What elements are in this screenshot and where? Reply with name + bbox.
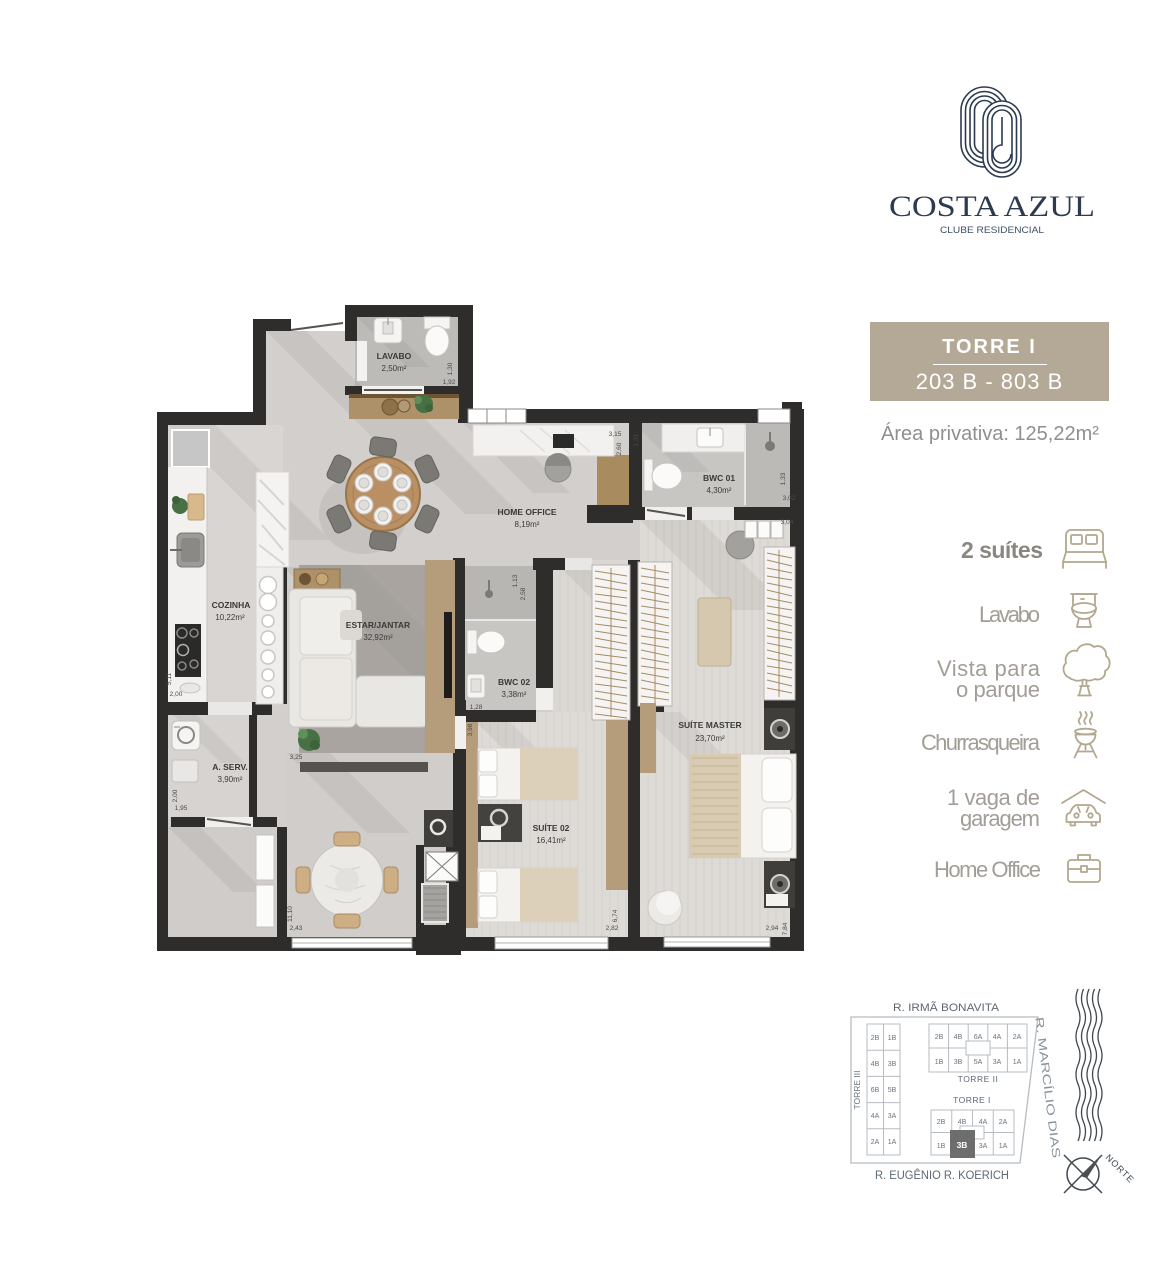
svg-text:LAVABO: LAVABO bbox=[377, 351, 412, 361]
svg-text:2A: 2A bbox=[1013, 1034, 1022, 1041]
svg-text:5,11: 5,11 bbox=[166, 673, 173, 686]
svg-text:HOME OFFICE: HOME OFFICE bbox=[497, 507, 556, 517]
svg-text:2 suítes: 2 suítes bbox=[961, 537, 1043, 563]
svg-text:5A: 5A bbox=[974, 1059, 983, 1066]
svg-text:4A: 4A bbox=[993, 1034, 1002, 1041]
svg-text:6B: 6B bbox=[871, 1087, 880, 1094]
svg-text:2,58: 2,58 bbox=[520, 587, 527, 600]
svg-text:TORRE II: TORRE II bbox=[958, 1074, 999, 1084]
svg-text:CLUBE RESIDENCIAL: CLUBE RESIDENCIAL bbox=[940, 225, 1044, 236]
svg-text:2B: 2B bbox=[871, 1035, 880, 1042]
svg-text:32,92m²: 32,92m² bbox=[363, 633, 393, 642]
svg-text:2A: 2A bbox=[999, 1119, 1008, 1126]
svg-text:TORRE I: TORRE I bbox=[953, 1095, 991, 1105]
svg-text:11,10: 11,10 bbox=[287, 906, 294, 922]
svg-text:1,31: 1,31 bbox=[633, 433, 640, 446]
svg-text:1,13: 1,13 bbox=[512, 574, 519, 587]
svg-text:3B: 3B bbox=[888, 1061, 897, 1068]
svg-text:Lavabo: Lavabo bbox=[979, 602, 1040, 627]
svg-text:2,43: 2,43 bbox=[290, 925, 303, 932]
svg-text:3A: 3A bbox=[888, 1113, 897, 1120]
svg-text:Home Office: Home Office bbox=[934, 857, 1041, 882]
svg-text:1,92: 1,92 bbox=[443, 379, 456, 386]
svg-text:4A: 4A bbox=[871, 1113, 880, 1120]
svg-text:1,33: 1,33 bbox=[780, 472, 787, 485]
svg-text:1A: 1A bbox=[1013, 1059, 1022, 1066]
svg-text:1A: 1A bbox=[999, 1143, 1008, 1150]
svg-text:23,70m²: 23,70m² bbox=[695, 734, 725, 743]
svg-text:3A: 3A bbox=[993, 1059, 1002, 1066]
svg-text:Churrasqueira: Churrasqueira bbox=[921, 730, 1041, 755]
svg-text:3A: 3A bbox=[979, 1143, 988, 1150]
svg-text:COSTA AZUL: COSTA AZUL bbox=[889, 190, 1095, 223]
svg-text:2,00: 2,00 bbox=[172, 789, 179, 802]
svg-text:2A: 2A bbox=[871, 1139, 880, 1146]
svg-text:2,82: 2,82 bbox=[606, 925, 619, 932]
svg-text:1A: 1A bbox=[888, 1139, 897, 1146]
svg-text:10,22m²: 10,22m² bbox=[215, 613, 245, 622]
svg-text:4B: 4B bbox=[954, 1034, 963, 1041]
svg-text:3,38m²: 3,38m² bbox=[502, 690, 527, 699]
svg-text:R. EUGÊNIO R. KOERICH: R. EUGÊNIO R. KOERICH bbox=[875, 1169, 1009, 1182]
svg-text:7,84: 7,84 bbox=[782, 922, 789, 935]
svg-text:4A: 4A bbox=[979, 1119, 988, 1126]
svg-text:3,98: 3,98 bbox=[467, 723, 474, 736]
svg-text:2B: 2B bbox=[937, 1119, 946, 1126]
svg-text:4B: 4B bbox=[871, 1061, 880, 1068]
svg-text:2,00: 2,00 bbox=[170, 691, 183, 698]
svg-text:3,02: 3,02 bbox=[783, 495, 796, 502]
svg-text:o parque: o parque bbox=[956, 677, 1040, 702]
svg-text:BWC 02: BWC 02 bbox=[498, 677, 530, 687]
svg-text:R. IRMÃ BONAVITA: R. IRMÃ BONAVITA bbox=[893, 1001, 1000, 1014]
svg-text:1,95: 1,95 bbox=[175, 805, 188, 812]
svg-text:3B: 3B bbox=[954, 1059, 963, 1066]
svg-text:1,28: 1,28 bbox=[470, 704, 483, 711]
svg-text:2,94: 2,94 bbox=[766, 925, 779, 932]
svg-text:4,30m²: 4,30m² bbox=[707, 486, 732, 495]
svg-text:8,19m²: 8,19m² bbox=[515, 520, 540, 529]
svg-text:A. SERV.: A. SERV. bbox=[212, 762, 247, 772]
svg-text:2B: 2B bbox=[935, 1034, 944, 1041]
svg-text:2,50m²: 2,50m² bbox=[382, 364, 407, 373]
svg-text:16,41m²: 16,41m² bbox=[536, 836, 566, 845]
svg-text:1B: 1B bbox=[937, 1143, 946, 1150]
svg-text:garagem: garagem bbox=[960, 806, 1040, 831]
svg-text:SUÍTE MASTER: SUÍTE MASTER bbox=[678, 720, 741, 730]
svg-text:COZINHA: COZINHA bbox=[212, 600, 251, 610]
svg-text:3,90m²: 3,90m² bbox=[218, 775, 243, 784]
svg-text:4B: 4B bbox=[958, 1119, 967, 1126]
svg-text:2,60: 2,60 bbox=[616, 442, 623, 455]
svg-text:1B: 1B bbox=[888, 1035, 897, 1042]
svg-text:6A: 6A bbox=[974, 1034, 983, 1041]
svg-text:3B: 3B bbox=[957, 1140, 968, 1150]
svg-text:NORTE: NORTE bbox=[1104, 1152, 1137, 1185]
svg-text:1,30: 1,30 bbox=[447, 362, 454, 375]
svg-text:3,04: 3,04 bbox=[781, 519, 794, 526]
svg-text:1B: 1B bbox=[935, 1059, 944, 1066]
svg-text:ESTAR/JANTAR: ESTAR/JANTAR bbox=[346, 620, 410, 630]
svg-text:SUÍTE 02: SUÍTE 02 bbox=[533, 823, 570, 833]
svg-text:3,15: 3,15 bbox=[609, 431, 622, 438]
svg-text:5B: 5B bbox=[888, 1087, 897, 1094]
svg-text:6,74: 6,74 bbox=[612, 909, 619, 922]
svg-text:R. MARCÍLIO DIAS: R. MARCÍLIO DIAS bbox=[1032, 1016, 1062, 1159]
svg-text:TORRE III: TORRE III bbox=[852, 1070, 862, 1109]
svg-text:BWC 01: BWC 01 bbox=[703, 473, 735, 483]
svg-text:3,25: 3,25 bbox=[290, 754, 303, 761]
